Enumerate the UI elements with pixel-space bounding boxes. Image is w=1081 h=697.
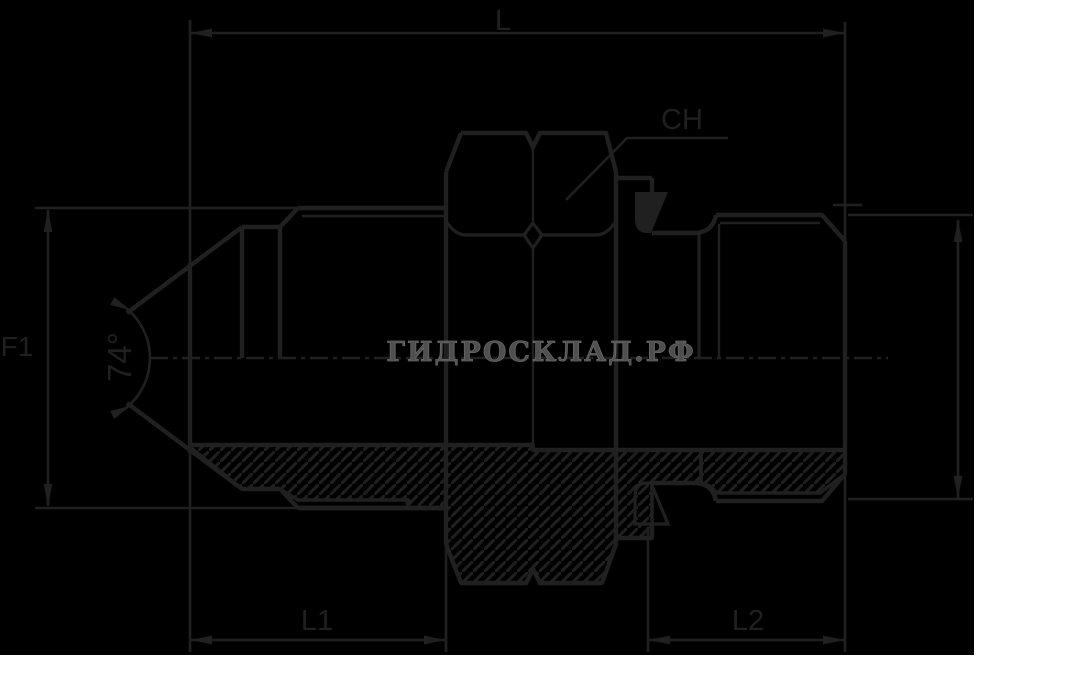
label-l1: L1 (301, 605, 333, 637)
watermark-text: ГИДРОСКЛАД.РФ (386, 337, 695, 368)
label-flare-diameter: F1 (1, 331, 34, 362)
fitting-drawing: L CH F1 74° L1 L2 ГИДРОСКЛАД.РФ (0, 0, 1081, 697)
label-hex-size: CH (661, 104, 703, 136)
label-l2: L2 (732, 605, 764, 637)
section-hatch-right (701, 450, 845, 493)
label-overall-length: L (495, 5, 511, 37)
technical-drawing-page: L CH F1 74° L1 L2 ГИДРОСКЛАД.РФ (0, 0, 1081, 697)
label-cone-angle: 74° (101, 332, 138, 382)
